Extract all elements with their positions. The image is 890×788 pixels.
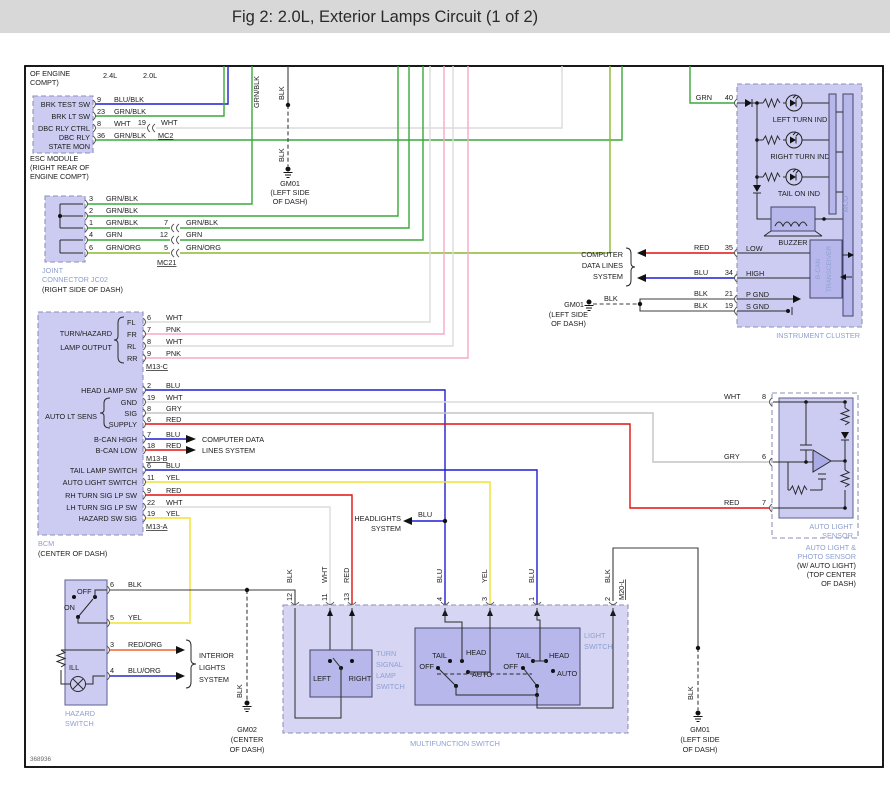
ground-location: OF DASH) (273, 197, 308, 206)
component-name: SWITCH (584, 642, 613, 651)
figure-id: 368936 (30, 756, 52, 763)
ground-location: OF DASH) (683, 745, 718, 754)
switch-position-label: OFF (503, 662, 518, 671)
wire-color-label: BLK (277, 148, 286, 162)
pin-number: 4 (89, 230, 93, 239)
pin-number: 5 (164, 243, 168, 252)
pin-number: 1 (527, 597, 536, 601)
wire-color-label: BLK (694, 301, 708, 310)
pin-number: 22 (147, 498, 155, 507)
pin-number: 21 (725, 289, 733, 298)
title-bar: Fig 2: 2.0L, Exterior Lamps Circuit (1 o… (0, 0, 890, 33)
ground-name: GM02 (237, 725, 257, 734)
pin-number: 7 (762, 498, 766, 507)
system-reference: INTERIOR (199, 651, 234, 660)
wiring-diagram-page: Fig 2: 2.0L, Exterior Lamps Circuit (1 o… (0, 0, 890, 783)
wire-color-label: BLU (435, 569, 444, 583)
wire-color-label: WHT (166, 393, 183, 402)
bcm-pin-label: B-CAN LOW (96, 446, 137, 455)
pin-number: 3 (110, 640, 114, 649)
component-name: JOINT (42, 266, 64, 275)
pin-number: 6 (110, 580, 114, 589)
wire-color-label: GRN/BLK (106, 194, 138, 203)
wire-color-label: BLK (686, 686, 695, 700)
ground-name: GM01 (280, 179, 300, 188)
esc-pin-label: BRK LT SW (51, 112, 90, 121)
wire-color-label: BLU (694, 268, 708, 277)
pin-number: 19 (147, 509, 155, 518)
system-reference: COMPUTER (581, 250, 623, 259)
wire-color-label: BLU (418, 510, 432, 519)
wire-color-label: BLU/BLK (114, 95, 144, 104)
connector-label: MC21 (157, 258, 176, 267)
component-name: INSTRUMENT CLUSTER (776, 331, 860, 340)
pin-number: 18 (147, 441, 155, 450)
bcm-pin-label: FR (127, 330, 137, 339)
cluster-pin-label: P GND (746, 290, 769, 299)
wire-color-label: GRY (724, 452, 740, 461)
pin-number: 19 (147, 393, 155, 402)
pin-number: 8 (97, 119, 101, 128)
switch-position-label: TAIL (516, 651, 531, 660)
pin-number: 3 (89, 194, 93, 203)
bcm-pin-label: SIG (124, 409, 137, 418)
pin-number: 8 (147, 404, 151, 413)
pin-number: 19 (138, 118, 146, 127)
wire-color-label: BLK (604, 294, 618, 303)
indicator-label: TAIL ON IND (778, 189, 820, 198)
wire-color-label: YEL (166, 509, 180, 518)
bcm-pin-label: RH TURN SIG LP SW (65, 491, 137, 500)
switch-position-label: OFF (77, 587, 92, 596)
component-name: SWITCH (65, 719, 94, 728)
bcm-label: LAMP OUTPUT (60, 343, 112, 352)
pin-number: 34 (725, 268, 733, 277)
esc-pin-label: STATE MON (49, 142, 90, 151)
wire-color-label: YEL (166, 473, 180, 482)
pin-number: 9 (147, 349, 151, 358)
pin-number: 36 (97, 131, 105, 140)
bcm-pin-label: LH TURN SIG LP SW (66, 503, 137, 512)
component-name: LAMP (376, 671, 396, 680)
pin-number: 5 (110, 613, 114, 622)
esc-note: OF ENGINE (30, 69, 70, 78)
wire-color-label: WHT (114, 119, 131, 128)
wire-color-label: GRY (166, 404, 182, 413)
pin-number: 11 (147, 473, 155, 482)
wire-color-label: RED/ORG (128, 640, 162, 649)
cluster-pin-label: LOW (746, 244, 763, 253)
pin-number: 4 (435, 597, 444, 601)
pin-number: 8 (762, 392, 766, 401)
wire-color-label: BLK (277, 86, 286, 100)
switch-position-label: HEAD (466, 648, 486, 657)
wire-color-label: BLK (603, 569, 612, 583)
pin-number: 7 (147, 325, 151, 334)
bcm-pin-label: RR (127, 354, 138, 363)
bcm-pin-label: HEAD LAMP SW (81, 386, 137, 395)
component-location: (RIGHT SIDE OF DASH) (42, 285, 123, 294)
component-name: AUTO LIGHT (809, 522, 853, 531)
esc-pin-label: BRK TEST SW (41, 100, 90, 109)
pin-number: 2 (603, 597, 612, 601)
page-title: Fig 2: 2.0L, Exterior Lamps Circuit (1 o… (232, 8, 538, 26)
connector-label: M13-A (146, 522, 168, 531)
component-name: BCM (38, 539, 54, 548)
component-name: ESC MODULE (30, 154, 78, 163)
bcm-pin-label: HAZARD SW SIG (79, 514, 138, 523)
switch-position-label: TAIL (432, 651, 447, 660)
component-location: (CENTER OF DASH) (38, 549, 107, 558)
esc-note: COMPT) (30, 78, 59, 87)
wire-color-label: GRN/BLK (114, 131, 146, 140)
pin-number: 7 (147, 430, 151, 439)
wire-color-label: PNK (166, 325, 181, 334)
pin-number: 8 (147, 337, 151, 346)
bcm-pin-label: B-CAN HIGH (94, 435, 137, 444)
pin-number: 35 (725, 243, 733, 252)
switch-position-label: HEAD (549, 651, 569, 660)
wire-color-label: RED (166, 441, 181, 450)
esc-pin-label: DBC RLY (59, 133, 90, 142)
switch-position-label: ILL (69, 663, 79, 672)
pin-number: 2 (89, 206, 93, 215)
system-reference: HEADLIGHTS (354, 514, 401, 523)
pin-number: 6 (89, 243, 93, 252)
wire-color-label: GRN (106, 230, 122, 239)
wire-color-label: GRN/BLK (252, 76, 261, 108)
wire-color-label: YEL (480, 569, 489, 583)
wire-color-label: WHT (161, 118, 178, 127)
component-name: PHOTO SENSOR (797, 552, 856, 561)
pin-number: 6 (762, 452, 766, 461)
engine-variant: 2.4L (103, 71, 117, 80)
pin-number: 9 (97, 95, 101, 104)
component-location: (TOP CENTER (807, 570, 856, 579)
wire-color-label: GRN/BLK (114, 107, 146, 116)
wire-color-label: WHT (166, 337, 183, 346)
wire-color-label: GRN/BLK (106, 206, 138, 215)
pin-number: 6 (147, 313, 151, 322)
system-reference: SYSTEM (371, 524, 401, 533)
pin-number: 11 (320, 593, 329, 601)
pin-number: 7 (164, 218, 168, 227)
cluster-pin-label: HIGH (746, 269, 764, 278)
pin-number: 12 (160, 230, 168, 239)
exterior-lamps-circuit-diagram: Fig 2: 2.0L, Exterior Lamps Circuit (1 o… (0, 0, 890, 783)
component-name: CONNECTOR JC02 (42, 275, 108, 284)
pin-number: 40 (725, 93, 733, 102)
cluster-pin-label: S GND (746, 302, 769, 311)
component-name: SENSOR (822, 531, 853, 540)
mcu-label: MCU (841, 196, 850, 213)
component-name: AUTO LIGHT & (806, 543, 857, 552)
pin-number: 19 (725, 301, 733, 310)
connector-label: MC2 (158, 131, 173, 140)
wire-color-label: GRN/ORG (106, 243, 141, 252)
system-reference: LIGHTS (199, 663, 225, 672)
buzzer-label: BUZZER (778, 238, 807, 247)
component-name: LIGHT (584, 631, 606, 640)
wire-color-label: BLU (166, 430, 180, 439)
pin-number: 2 (147, 381, 151, 390)
bcm-label: TURN/HAZARD (60, 329, 112, 338)
wire-color-label: BLK (128, 580, 142, 589)
pin-number: 12 (285, 593, 294, 601)
wire-color-label: RED (342, 568, 351, 583)
wire-color-label: BLU (166, 461, 180, 470)
pin-number: 23 (97, 107, 105, 116)
system-reference: LINES SYSTEM (202, 446, 255, 455)
bcm-pin-label: TAIL LAMP SWITCH (70, 466, 137, 475)
transceiver-label: TRANSCEIVER (826, 246, 833, 293)
wire-color-label: GRN/BLK (106, 218, 138, 227)
switch-position-label: ON (64, 603, 75, 612)
bcm-pin-label: AUTO LIGHT SWITCH (63, 478, 137, 487)
wire-color-label: PNK (166, 349, 181, 358)
switch-position-label: AUTO (557, 669, 577, 678)
ground-location: OF DASH) (230, 745, 265, 754)
component-name: SIGNAL (376, 660, 403, 669)
wire-color-label: RED (166, 415, 181, 424)
ground-location: (LEFT SIDE (680, 735, 719, 744)
esc-pin-label: DBC RLY CTRL (38, 124, 90, 133)
ground-location: OF DASH) (551, 319, 586, 328)
ground-location: (CENTER (231, 735, 263, 744)
wire-color-label: GRN/ORG (186, 243, 221, 252)
system-reference: COMPUTER DATA (202, 435, 264, 444)
bcm-pin-label: GND (121, 398, 137, 407)
bcm-pin-label: SUPPLY (109, 420, 137, 429)
component-name: TURN (376, 649, 396, 658)
wire-color-label: YEL (128, 613, 142, 622)
wire-color-label: BLU/ORG (128, 666, 161, 675)
wire-color-label: WHT (166, 313, 183, 322)
switch-position-label: LEFT (313, 674, 331, 683)
pin-number: 13 (342, 593, 351, 601)
component-name: HAZARD (65, 709, 95, 718)
component-name: SWITCH (376, 682, 405, 691)
component-name: MULTIFUNCTION SWITCH (410, 739, 500, 748)
switch-position-label: RIGHT (349, 674, 372, 683)
ground-location: (LEFT SIDE (270, 188, 309, 197)
connector-label: M13-C (146, 362, 168, 371)
indicator-label: RIGHT TURN IND (770, 152, 829, 161)
wire-color-label: BLK (235, 684, 244, 698)
wire-color-label: GRN (186, 230, 202, 239)
system-reference: DATA LINES (582, 261, 623, 270)
component-location: (RIGHT REAR OF (30, 163, 90, 172)
wire-color-label: GRN/BLK (186, 218, 218, 227)
pin-number: 9 (147, 486, 151, 495)
wire-color-label: WHT (320, 566, 329, 583)
pin-number: 4 (110, 666, 114, 675)
transceiver-label: B-CAN (815, 259, 822, 280)
component-location: OF DASH) (821, 579, 856, 588)
wire-color-label: BLU (166, 381, 180, 390)
wire-color-label: WHT (724, 392, 741, 401)
wire-color-label: GRN (696, 93, 712, 102)
indicator-label: LEFT TURN IND (773, 115, 827, 124)
component-location: ENGINE COMPT) (30, 172, 89, 181)
ground-name: GM01 (690, 725, 710, 734)
bcm-pin-label: FL (127, 318, 136, 327)
system-reference: SYSTEM (593, 272, 623, 281)
bcm-label: AUTO LT SENS (45, 412, 97, 421)
bcm-pin-label: RL (127, 342, 136, 351)
engine-variant: 2.0L (143, 71, 157, 80)
wire-color-label: RED (724, 498, 739, 507)
connector-label: M20-L (617, 579, 626, 600)
ground-location: (LEFT SIDE (549, 310, 588, 319)
pin-number: 6 (147, 415, 151, 424)
pin-number: 1 (89, 218, 93, 227)
switch-position-label: OFF (419, 662, 434, 671)
wire-color-label: RED (166, 486, 181, 495)
pin-number: 6 (147, 461, 151, 470)
wire-color-label: WHT (166, 498, 183, 507)
wire-color-label: BLK (285, 569, 294, 583)
wire-color-label: RED (694, 243, 709, 252)
component-location: (W/ AUTO LIGHT) (797, 561, 856, 570)
ground-name: GM01 (564, 300, 584, 309)
wire-color-label: BLU (527, 569, 536, 583)
system-reference: SYSTEM (199, 675, 229, 684)
pin-number: 3 (480, 597, 489, 601)
wire-color-label: BLK (694, 289, 708, 298)
switch-position-label: AUTO (472, 670, 492, 679)
